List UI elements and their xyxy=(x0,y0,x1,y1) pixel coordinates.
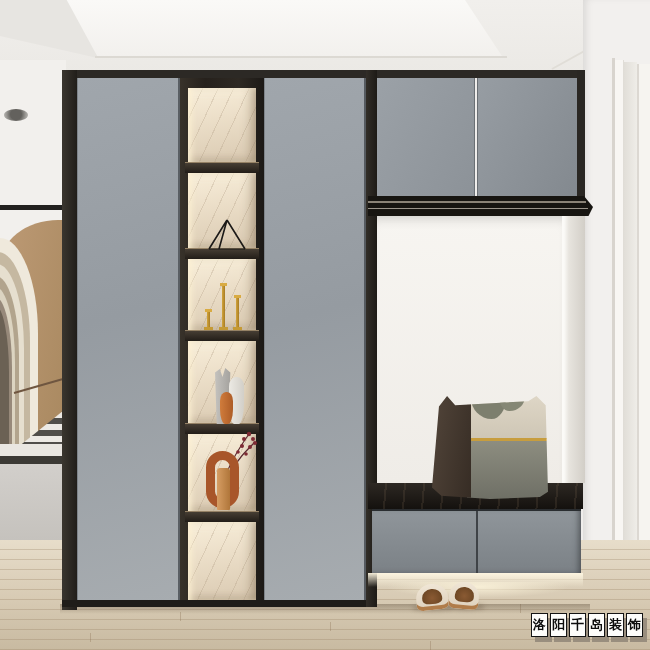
watermark-char: 千 xyxy=(569,613,586,637)
floor-plank-seam xyxy=(330,622,331,631)
watermark-char: 洛 xyxy=(531,613,548,637)
gold-candlestick-tall xyxy=(222,283,225,330)
cushion-olive-body xyxy=(467,441,548,500)
slipper-left-opening xyxy=(421,588,442,605)
door-frame xyxy=(615,60,624,558)
left-lower-wall xyxy=(0,464,66,546)
cabinet-top-frame xyxy=(62,70,585,78)
tan-cylinder-vase xyxy=(217,468,230,510)
shelf-board xyxy=(185,330,259,341)
soffit-trim-line xyxy=(368,208,588,209)
cabinet-bottom-frame xyxy=(62,600,366,607)
door-frame-recess xyxy=(624,62,637,558)
left-wall-dark-rail xyxy=(0,205,66,210)
gold-candlestick-medium xyxy=(236,295,239,330)
floor-plank-seam xyxy=(90,633,91,642)
ceiling-recess xyxy=(60,0,510,58)
niche-side-return xyxy=(562,216,585,483)
recessed-downlight xyxy=(4,109,28,121)
gold-candlestick-short xyxy=(207,309,210,330)
shelf-board xyxy=(185,511,259,522)
upper-cabinet-soffit xyxy=(368,196,593,216)
tall-cabinet-door-right xyxy=(264,78,366,602)
cushion xyxy=(432,396,548,500)
ceiling-recess-edge xyxy=(95,56,507,58)
upper-cabinet-door-right xyxy=(477,78,577,196)
watermark: 洛 阳 千 岛 装 饰 xyxy=(531,610,650,639)
display-cell-6 xyxy=(188,522,256,600)
tall-cabinet-door-left xyxy=(77,78,180,602)
watermark-char: 阳 xyxy=(550,613,567,637)
cabinet-left-frame xyxy=(62,70,77,610)
floor-plank-seam xyxy=(430,641,431,650)
display-cell-1 xyxy=(188,88,256,162)
orange-vase xyxy=(220,392,233,424)
wire-triangle-ornament xyxy=(207,219,247,250)
white-door-edge xyxy=(637,64,650,558)
bench-drawer-divider xyxy=(476,511,478,573)
watermark-char: 饰 xyxy=(626,613,643,637)
watermark-char: 装 xyxy=(607,613,624,637)
upper-cabinet-right-frame xyxy=(577,70,585,216)
interior-scene: 洛 阳 千 岛 装 饰 xyxy=(0,0,650,650)
shelf-board xyxy=(185,162,259,173)
stair-base-white xyxy=(0,444,66,456)
stair-base-dark xyxy=(0,456,66,464)
upper-cabinet-door-left xyxy=(377,78,475,196)
soffit-trim-line xyxy=(368,201,586,203)
watermark-char: 岛 xyxy=(588,613,605,637)
